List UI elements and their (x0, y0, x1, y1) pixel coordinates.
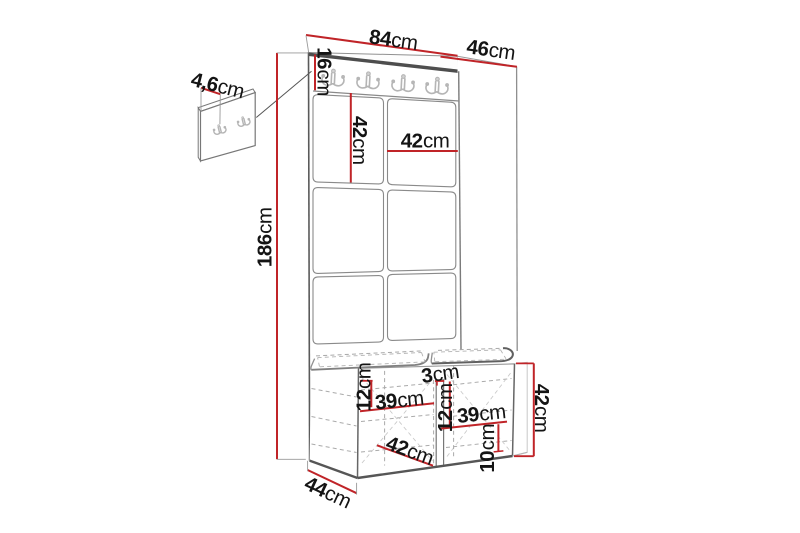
svg-text:12cm: 12cm (434, 383, 457, 432)
svg-text:42cm: 42cm (348, 116, 371, 165)
svg-text:42cm: 42cm (401, 130, 450, 153)
svg-text:4,6cm: 4,6cm (189, 68, 247, 103)
svg-text:44cm: 44cm (301, 472, 355, 513)
svg-text:84cm: 84cm (368, 25, 419, 55)
svg-text:12cm: 12cm (353, 363, 376, 412)
svg-text:42cm: 42cm (530, 384, 553, 433)
svg-text:186cm: 186cm (254, 208, 277, 268)
svg-text:10cm: 10cm (476, 424, 499, 473)
svg-text:16cm: 16cm (313, 47, 336, 96)
